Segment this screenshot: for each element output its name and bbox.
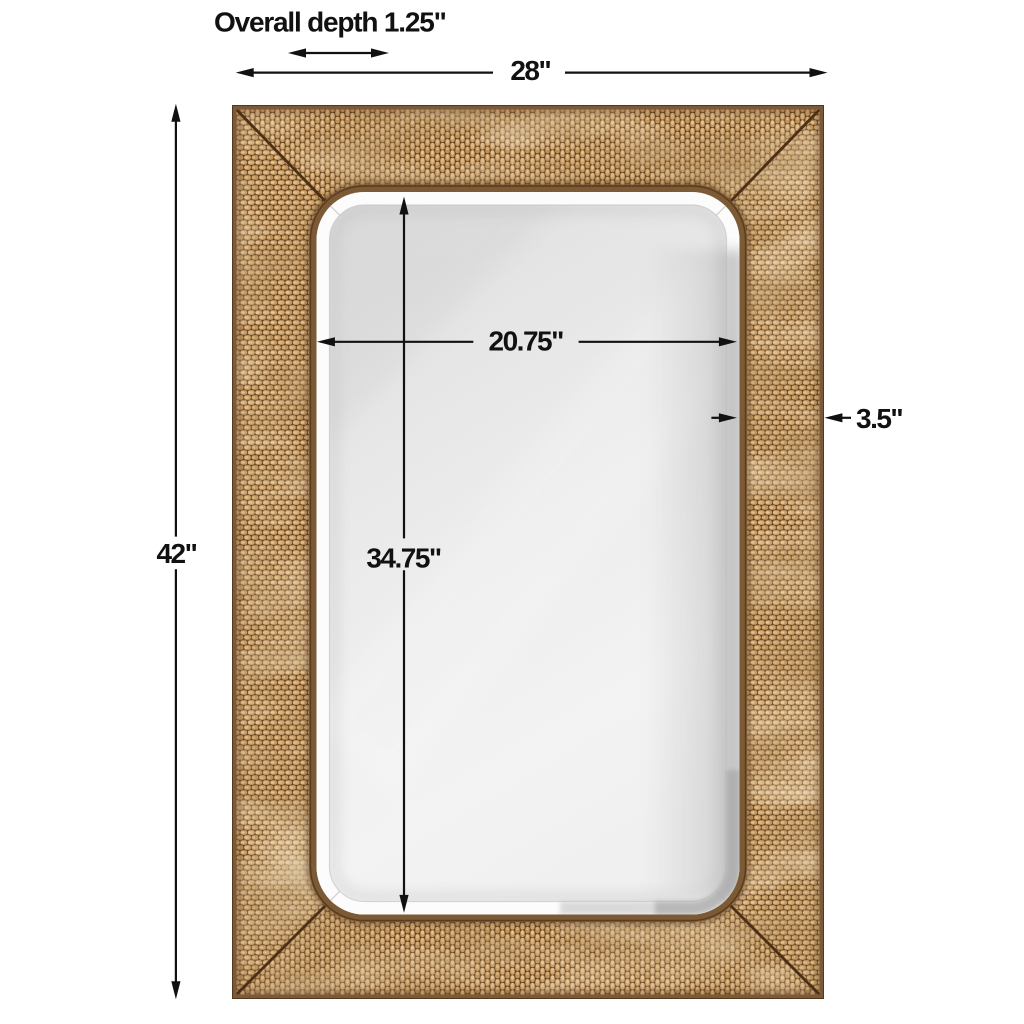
svg-text:34.75": 34.75" <box>366 543 441 574</box>
svg-text:3.5": 3.5" <box>856 403 902 434</box>
svg-text:Overall depth 1.25": Overall depth 1.25" <box>214 7 446 38</box>
svg-text:42": 42" <box>156 538 196 569</box>
svg-text:20.75": 20.75" <box>489 326 564 357</box>
svg-text:28": 28" <box>510 55 550 86</box>
